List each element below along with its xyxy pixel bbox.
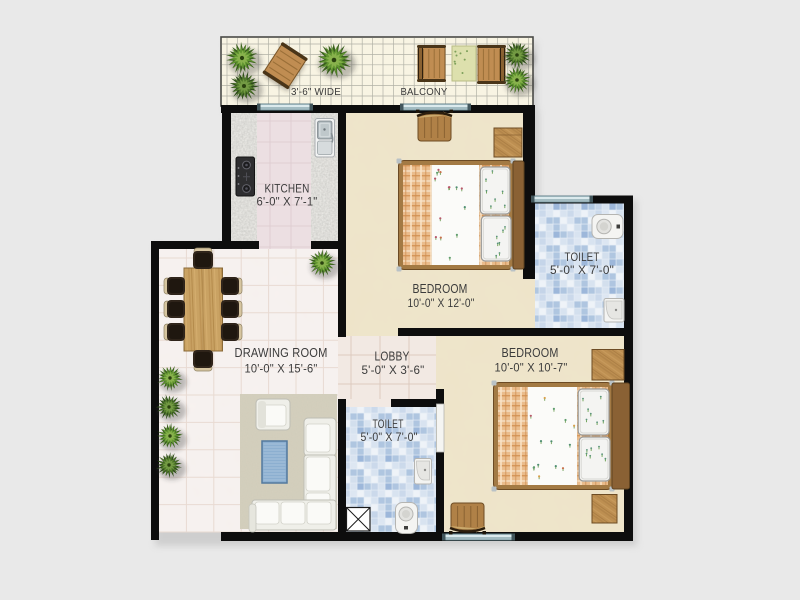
svg-text:KITCHEN: KITCHEN — [265, 182, 310, 196]
svg-text:DRAWING ROOM: DRAWING ROOM — [235, 346, 328, 360]
svg-text:TOILET: TOILET — [373, 417, 404, 431]
svg-text:10'-0" X 10'-7": 10'-0" X 10'-7" — [495, 363, 568, 375]
svg-text:6'-0" X 7'-1": 6'-0" X 7'-1" — [257, 197, 318, 209]
svg-text:BEDROOM: BEDROOM — [413, 282, 468, 296]
svg-text:3'-6" WIDE: 3'-6" WIDE — [291, 86, 341, 98]
svg-text:5'-0" X 7'-0": 5'-0" X 7'-0" — [361, 432, 418, 444]
svg-text:10'-0" X 12'-0": 10'-0" X 12'-0" — [408, 298, 475, 310]
svg-text:10'-0" X 15'-6": 10'-0" X 15'-6" — [245, 364, 318, 376]
svg-text:5'-0" X 7'-0": 5'-0" X 7'-0" — [550, 265, 614, 277]
svg-text:BEDROOM: BEDROOM — [502, 346, 559, 360]
svg-text:BALCONY: BALCONY — [401, 86, 448, 98]
svg-text:LOBBY: LOBBY — [375, 350, 410, 364]
svg-text:5'-0" X 3'-6": 5'-0" X 3'-6" — [362, 365, 425, 377]
svg-text:TOILET: TOILET — [565, 250, 600, 264]
